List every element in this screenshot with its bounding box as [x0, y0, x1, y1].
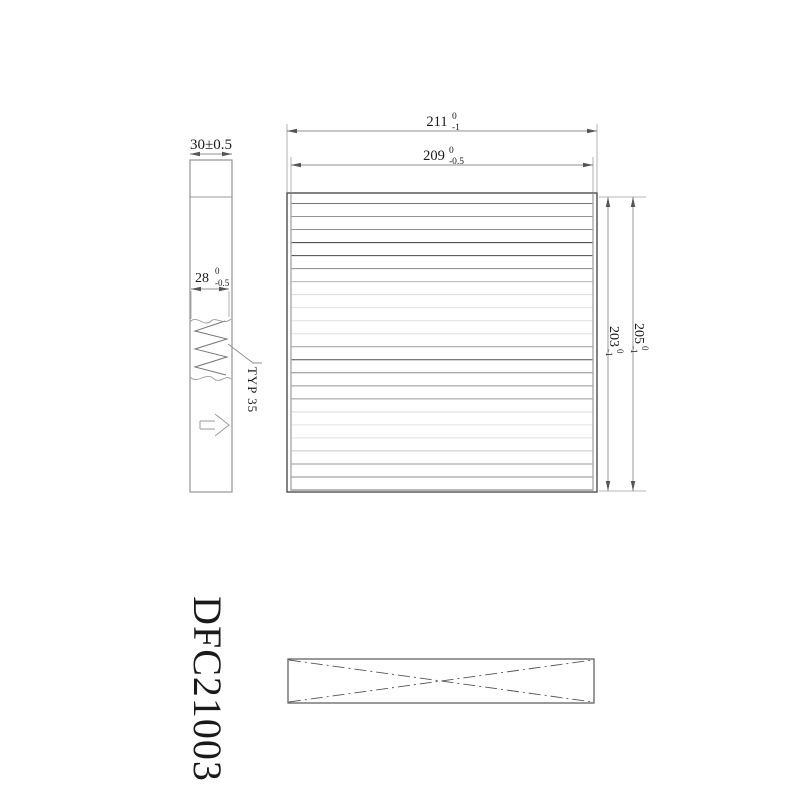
- part-number-label: DFC21003: [185, 596, 230, 782]
- arrowhead-icon: [191, 287, 201, 291]
- arrowhead-icon: [606, 197, 610, 207]
- arrowhead-icon: [631, 481, 635, 491]
- dim-media-value: 28: [195, 271, 209, 286]
- typ-note-leader-line: [228, 344, 262, 363]
- dim-outer-width-upper-tol: 0: [452, 112, 457, 122]
- front-view-outline: [287, 193, 597, 492]
- pleat-lines: [292, 204, 593, 491]
- front-view: [287, 193, 597, 492]
- dim-inner-width-209: 209 0 -0.5: [291, 146, 593, 192]
- bottom-view: [288, 659, 594, 703]
- drawing-svg: 30±0.5 28 0 -0.5 TYP 35 211 0 -1 209 0 -…: [0, 0, 800, 800]
- arrowhead-icon: [631, 197, 635, 207]
- dim-inner-height-lower-tol: -1: [604, 349, 614, 357]
- arrowhead-icon: [583, 163, 593, 167]
- dim-media-lower-tol: -0.5: [215, 278, 230, 288]
- dim-inner-height-upper-tol: 0: [615, 349, 625, 354]
- dim-outer-width-lower-tol: -1: [452, 123, 460, 133]
- dim-depth-30: 30±0.5: [190, 137, 232, 154]
- dim-inner-height-value: 203: [606, 326, 621, 347]
- dimension-arrowheads: [190, 129, 635, 491]
- dim-outer-height-205: 205 0 -1: [629, 323, 650, 354]
- dim-media-upper-tol: 0: [215, 266, 220, 276]
- dim-inner-width-upper-tol: 0: [449, 146, 454, 156]
- bottom-view-outline: [288, 659, 594, 703]
- dim-media-28: 28 0 -0.5: [191, 266, 230, 319]
- media-break-line-bottom: [190, 376, 231, 380]
- dim-inner-height-203: 203 0 -1: [604, 326, 625, 357]
- dim-outer-height-lower-tol: -1: [629, 346, 639, 354]
- arrowhead-icon: [587, 129, 597, 133]
- dim-outer-height-value: 205: [631, 323, 646, 344]
- engineering-drawing-canvas: 30±0.5 28 0 -0.5 TYP 35 211 0 -1 209 0 -…: [0, 0, 800, 800]
- side-view: [190, 160, 262, 492]
- dim-heights-right: 203 0 -1 205 0 -1: [599, 197, 650, 491]
- dim-inner-width-value: 209: [423, 148, 445, 164]
- dim-outer-width-value: 211: [426, 114, 447, 130]
- dim-outer-height-upper-tol: 0: [640, 346, 650, 351]
- airflow-arrow-icon: [200, 414, 229, 436]
- typ-note-label: TYP 35: [245, 367, 260, 413]
- dim-inner-width-lower-tol: -0.5: [449, 157, 464, 167]
- pleat-media-zigzag: [195, 321, 227, 375]
- arrowhead-icon: [291, 163, 301, 167]
- typ-note: TYP 35: [245, 367, 260, 413]
- dim-depth-label: 30±0.5: [190, 137, 232, 153]
- arrowhead-icon: [287, 129, 297, 133]
- arrowhead-icon: [606, 481, 610, 491]
- part-number-group: DFC21003: [185, 596, 230, 782]
